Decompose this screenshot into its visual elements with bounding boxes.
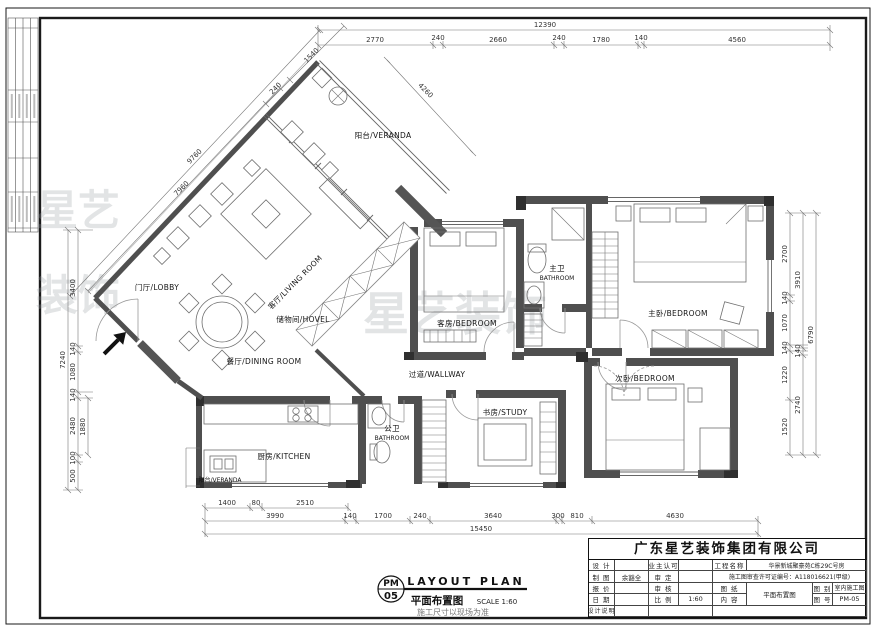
- dim-left-inner: 1880: [79, 418, 87, 436]
- drawing-note: 施工尺寸以现场为准: [417, 607, 489, 617]
- svg-text:240: 240: [431, 34, 444, 42]
- room-lobby: 门厅/LOBBY: [135, 283, 179, 292]
- room-master: 主卧/BEDROOM: [648, 308, 708, 318]
- svg-text:星艺: 星艺: [36, 186, 120, 235]
- tb-note-cell-c: [713, 606, 867, 617]
- svg-text:1520: 1520: [781, 418, 789, 436]
- drawing-sheet: 星艺 装饰 星艺装饰: [0, 0, 878, 632]
- dim-right-total: 6790: [807, 326, 815, 344]
- tb-label-draft: 制 图: [589, 571, 615, 582]
- svg-text:2700: 2700: [781, 245, 789, 263]
- tb-label-sheet: 图 纸: [713, 583, 747, 594]
- dim-top-total: 12390: [534, 21, 556, 29]
- tb-label-no: 图 号: [813, 594, 833, 605]
- svg-text:140: 140: [634, 34, 647, 42]
- svg-text:140: 140: [781, 291, 789, 304]
- tb-note-cell-a: [615, 606, 649, 617]
- dim-veranda-diag: 4260: [416, 81, 434, 99]
- signoff-strip: [8, 18, 38, 232]
- drawing-title-zh: 平面布置图: [411, 594, 464, 607]
- svg-text:300: 300: [551, 512, 564, 520]
- svg-text:1780: 1780: [592, 36, 610, 44]
- svg-text:1400: 1400: [218, 499, 236, 507]
- svg-text:140: 140: [343, 512, 356, 520]
- room-living: 客厅/LIVING ROOM: [266, 253, 325, 312]
- svg-text:3910: 3910: [794, 271, 802, 289]
- svg-text:3640: 3640: [484, 512, 502, 520]
- tb-value-design: [615, 560, 649, 571]
- tb-label-date: 日 期: [589, 594, 615, 605]
- svg-text:7960: 7960: [172, 179, 190, 197]
- tb-value-project: 华景新城聚豪苑C栋29C号房: [747, 560, 867, 571]
- wall-piers: [196, 196, 774, 488]
- tb-label-content: 内 容: [713, 594, 747, 605]
- room-kitchen: 厨房/KITCHEN: [257, 451, 310, 461]
- svg-text:2770: 2770: [366, 36, 384, 44]
- tb-label-design: 设 计: [589, 560, 615, 571]
- svg-text:140: 140: [794, 344, 802, 357]
- tb-value-permit: 施工图审查许可证编号：A118016621(甲级): [713, 571, 867, 582]
- drawing-title-en: LAYOUT PLAN: [407, 575, 524, 588]
- svg-text:1700: 1700: [374, 512, 392, 520]
- svg-text:240: 240: [552, 34, 565, 42]
- sheet-code-bottom: 05: [384, 591, 398, 602]
- drawing-title: PM 05 LAYOUT PLAN 平面布置图 SCALE 1:60 施工尺寸以…: [378, 575, 527, 617]
- furniture: [154, 68, 763, 488]
- svg-text:4560: 4560: [728, 36, 746, 44]
- tb-value-approve: [679, 571, 713, 582]
- room-dining: 餐厅/DINING ROOM: [227, 357, 302, 366]
- svg-text:100: 100: [69, 451, 77, 464]
- room-master-bath-en: BATHROOM: [540, 275, 575, 282]
- room-public-bath-zh: 公卫: [384, 424, 400, 433]
- room-guest: 客房/BEDROOM: [437, 318, 497, 328]
- room-veranda-top: 阳台/VERANDA: [355, 130, 412, 140]
- svg-text:3990: 3990: [266, 512, 284, 520]
- tb-label-type: 图 别: [813, 583, 833, 594]
- room-study: 书房/STUDY: [483, 407, 528, 417]
- svg-text:2740: 2740: [794, 396, 802, 414]
- svg-text:1080: 1080: [69, 363, 77, 381]
- room-storage: 储物间/HOVEL: [276, 314, 330, 324]
- tb-value-type: 室内施工图: [833, 583, 867, 594]
- room-master-bath-zh: 主卫: [549, 263, 565, 273]
- svg-text:1070: 1070: [781, 314, 789, 332]
- room-second: 次卧/BEDROOM: [615, 373, 675, 383]
- tb-label-owner: 业主认可: [649, 560, 679, 571]
- svg-text:3400: 3400: [69, 279, 77, 297]
- svg-text:80: 80: [252, 499, 261, 507]
- sheet-code-top: PM: [383, 579, 399, 589]
- room-hallway: 过道/WALLWAY: [409, 369, 466, 379]
- walls: [196, 196, 774, 488]
- room-veranda-bottom: 阳台/VERANDA: [198, 476, 242, 484]
- tb-label-scale: 比 例: [649, 594, 679, 605]
- tb-label-quote: 报 价: [589, 583, 615, 594]
- svg-text:500: 500: [69, 469, 77, 482]
- title-block: 广东星艺装饰集团有限公司 设 计 业主认可 工程名称 华景新城聚豪苑C栋29C号…: [588, 538, 866, 618]
- svg-text:1220: 1220: [781, 366, 789, 384]
- tb-value-date: [615, 594, 649, 605]
- svg-text:810: 810: [570, 512, 583, 520]
- tb-note-cell-b: [649, 606, 713, 617]
- svg-text:140: 140: [69, 388, 77, 401]
- company-name: 广东星艺装饰集团有限公司: [589, 539, 865, 560]
- tb-label-project: 工程名称: [713, 560, 747, 571]
- tb-label-approve: 审 定: [649, 571, 679, 582]
- tb-label-note: 设计说明: [589, 606, 615, 617]
- tb-value-scale: 1:60: [679, 594, 713, 605]
- room-public-bath-en: BATHROOM: [375, 435, 410, 442]
- dim-bottom-total: 15450: [470, 525, 492, 533]
- svg-text:2480: 2480: [69, 417, 77, 435]
- dim-left-total: 7240: [59, 351, 67, 369]
- tb-value-owner: [679, 560, 713, 571]
- drawing-scale: SCALE 1:60: [477, 598, 517, 606]
- svg-text:140: 140: [69, 342, 77, 355]
- svg-text:4630: 4630: [666, 512, 684, 520]
- tb-value-quote: [615, 583, 649, 594]
- dimensions: [63, 23, 833, 537]
- tb-value-check: [679, 583, 713, 594]
- tb-label-check: 审 核: [649, 583, 679, 594]
- svg-text:140: 140: [781, 341, 789, 354]
- tb-value-no: PM-05: [833, 594, 867, 605]
- tb-value-content: 平面布置图: [747, 583, 813, 606]
- svg-text:2660: 2660: [489, 36, 507, 44]
- svg-text:240: 240: [413, 512, 426, 520]
- svg-text:2510: 2510: [296, 499, 314, 507]
- tb-value-draft: 余豁全: [615, 571, 649, 582]
